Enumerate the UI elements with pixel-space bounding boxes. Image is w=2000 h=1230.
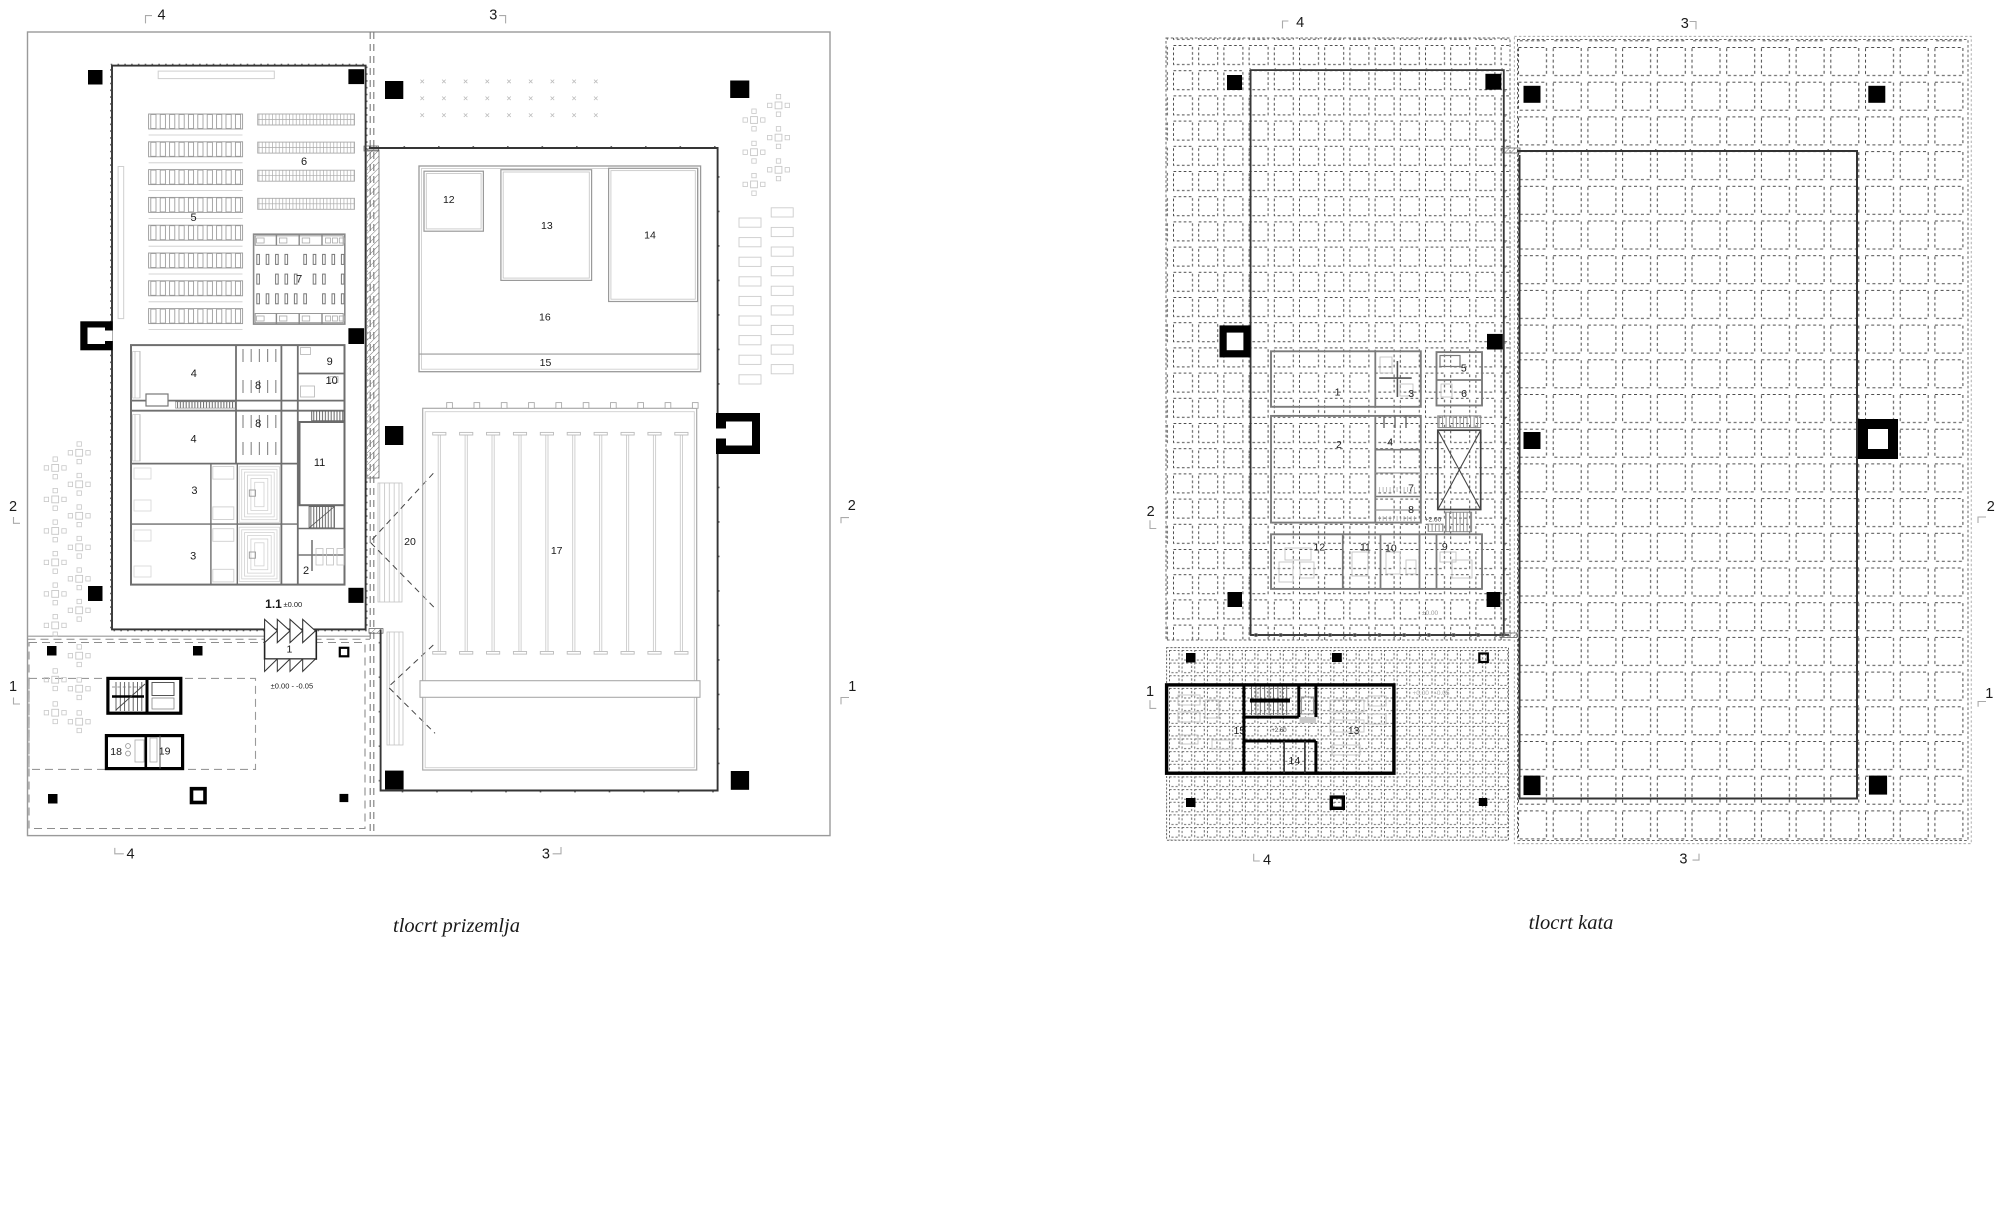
- svg-text:3: 3: [489, 8, 497, 24]
- svg-text:2: 2: [1336, 439, 1342, 451]
- svg-text:12: 12: [443, 194, 455, 206]
- svg-text:4: 4: [157, 8, 165, 24]
- svg-text:8: 8: [255, 418, 261, 430]
- svg-text:17: 17: [551, 545, 563, 557]
- svg-text:10: 10: [325, 375, 337, 387]
- svg-text:tlocrt kata: tlocrt kata: [1529, 912, 1614, 934]
- svg-text:2: 2: [1147, 504, 1155, 520]
- svg-text:14: 14: [644, 230, 656, 242]
- svg-text:2: 2: [1987, 499, 1995, 515]
- svg-text:9: 9: [1442, 541, 1448, 553]
- svg-text:4: 4: [191, 368, 197, 380]
- svg-text:+2.60: +2.60: [1425, 516, 1442, 523]
- svg-text:1: 1: [1335, 387, 1341, 399]
- svg-text:3: 3: [190, 551, 196, 563]
- svg-text:20: 20: [404, 536, 416, 548]
- svg-text:3: 3: [1681, 16, 1689, 32]
- svg-text:13: 13: [1348, 725, 1360, 737]
- svg-text:19: 19: [159, 746, 171, 758]
- svg-text:4: 4: [126, 846, 134, 862]
- svg-text:13: 13: [541, 220, 553, 232]
- svg-text:6: 6: [1461, 388, 1467, 400]
- svg-text:10: 10: [1385, 542, 1397, 554]
- svg-text:9: 9: [327, 356, 333, 368]
- svg-text:3: 3: [1679, 851, 1687, 867]
- svg-text:18: 18: [110, 746, 122, 758]
- svg-text:15: 15: [1233, 725, 1245, 737]
- svg-text:4: 4: [191, 434, 197, 446]
- svg-text:1: 1: [1146, 684, 1154, 700]
- svg-text:11: 11: [314, 457, 325, 469]
- svg-text:1: 1: [848, 679, 856, 695]
- svg-text:7: 7: [296, 274, 302, 286]
- svg-text:3: 3: [1408, 388, 1414, 400]
- svg-text:2: 2: [303, 565, 309, 577]
- svg-text:3: 3: [542, 846, 550, 862]
- svg-text:3: 3: [191, 485, 197, 497]
- svg-text:14: 14: [1289, 755, 1301, 767]
- svg-text:1: 1: [286, 644, 292, 656]
- svg-text:tlocrt prizemlja: tlocrt prizemlja: [393, 915, 520, 937]
- svg-text:5: 5: [1461, 363, 1467, 375]
- svg-text:+0.00 - -0.05: +0.00 - -0.05: [1412, 690, 1449, 697]
- svg-text:1.1: 1.1: [265, 597, 282, 611]
- svg-text:8: 8: [1408, 504, 1414, 516]
- svg-text:5: 5: [191, 212, 197, 224]
- svg-text:4: 4: [1296, 15, 1304, 31]
- svg-text:±0.00: ±0.00: [284, 600, 303, 609]
- svg-text:8: 8: [255, 380, 261, 392]
- svg-text:1: 1: [9, 679, 17, 695]
- svg-text:1: 1: [1985, 686, 1993, 702]
- svg-text:16: 16: [539, 312, 551, 324]
- svg-text:4: 4: [1263, 852, 1271, 868]
- svg-text:12: 12: [1314, 542, 1326, 554]
- svg-text:±0.00: ±0.00: [1422, 610, 1439, 617]
- svg-text:±0.00 - -0.05: ±0.00 - -0.05: [271, 681, 313, 690]
- svg-text:2: 2: [9, 499, 17, 515]
- svg-text:15: 15: [540, 357, 552, 369]
- svg-text:+2.60: +2.60: [1271, 728, 1287, 734]
- svg-text:6: 6: [301, 156, 307, 168]
- svg-text:2: 2: [848, 498, 856, 514]
- svg-text:4: 4: [1387, 436, 1393, 448]
